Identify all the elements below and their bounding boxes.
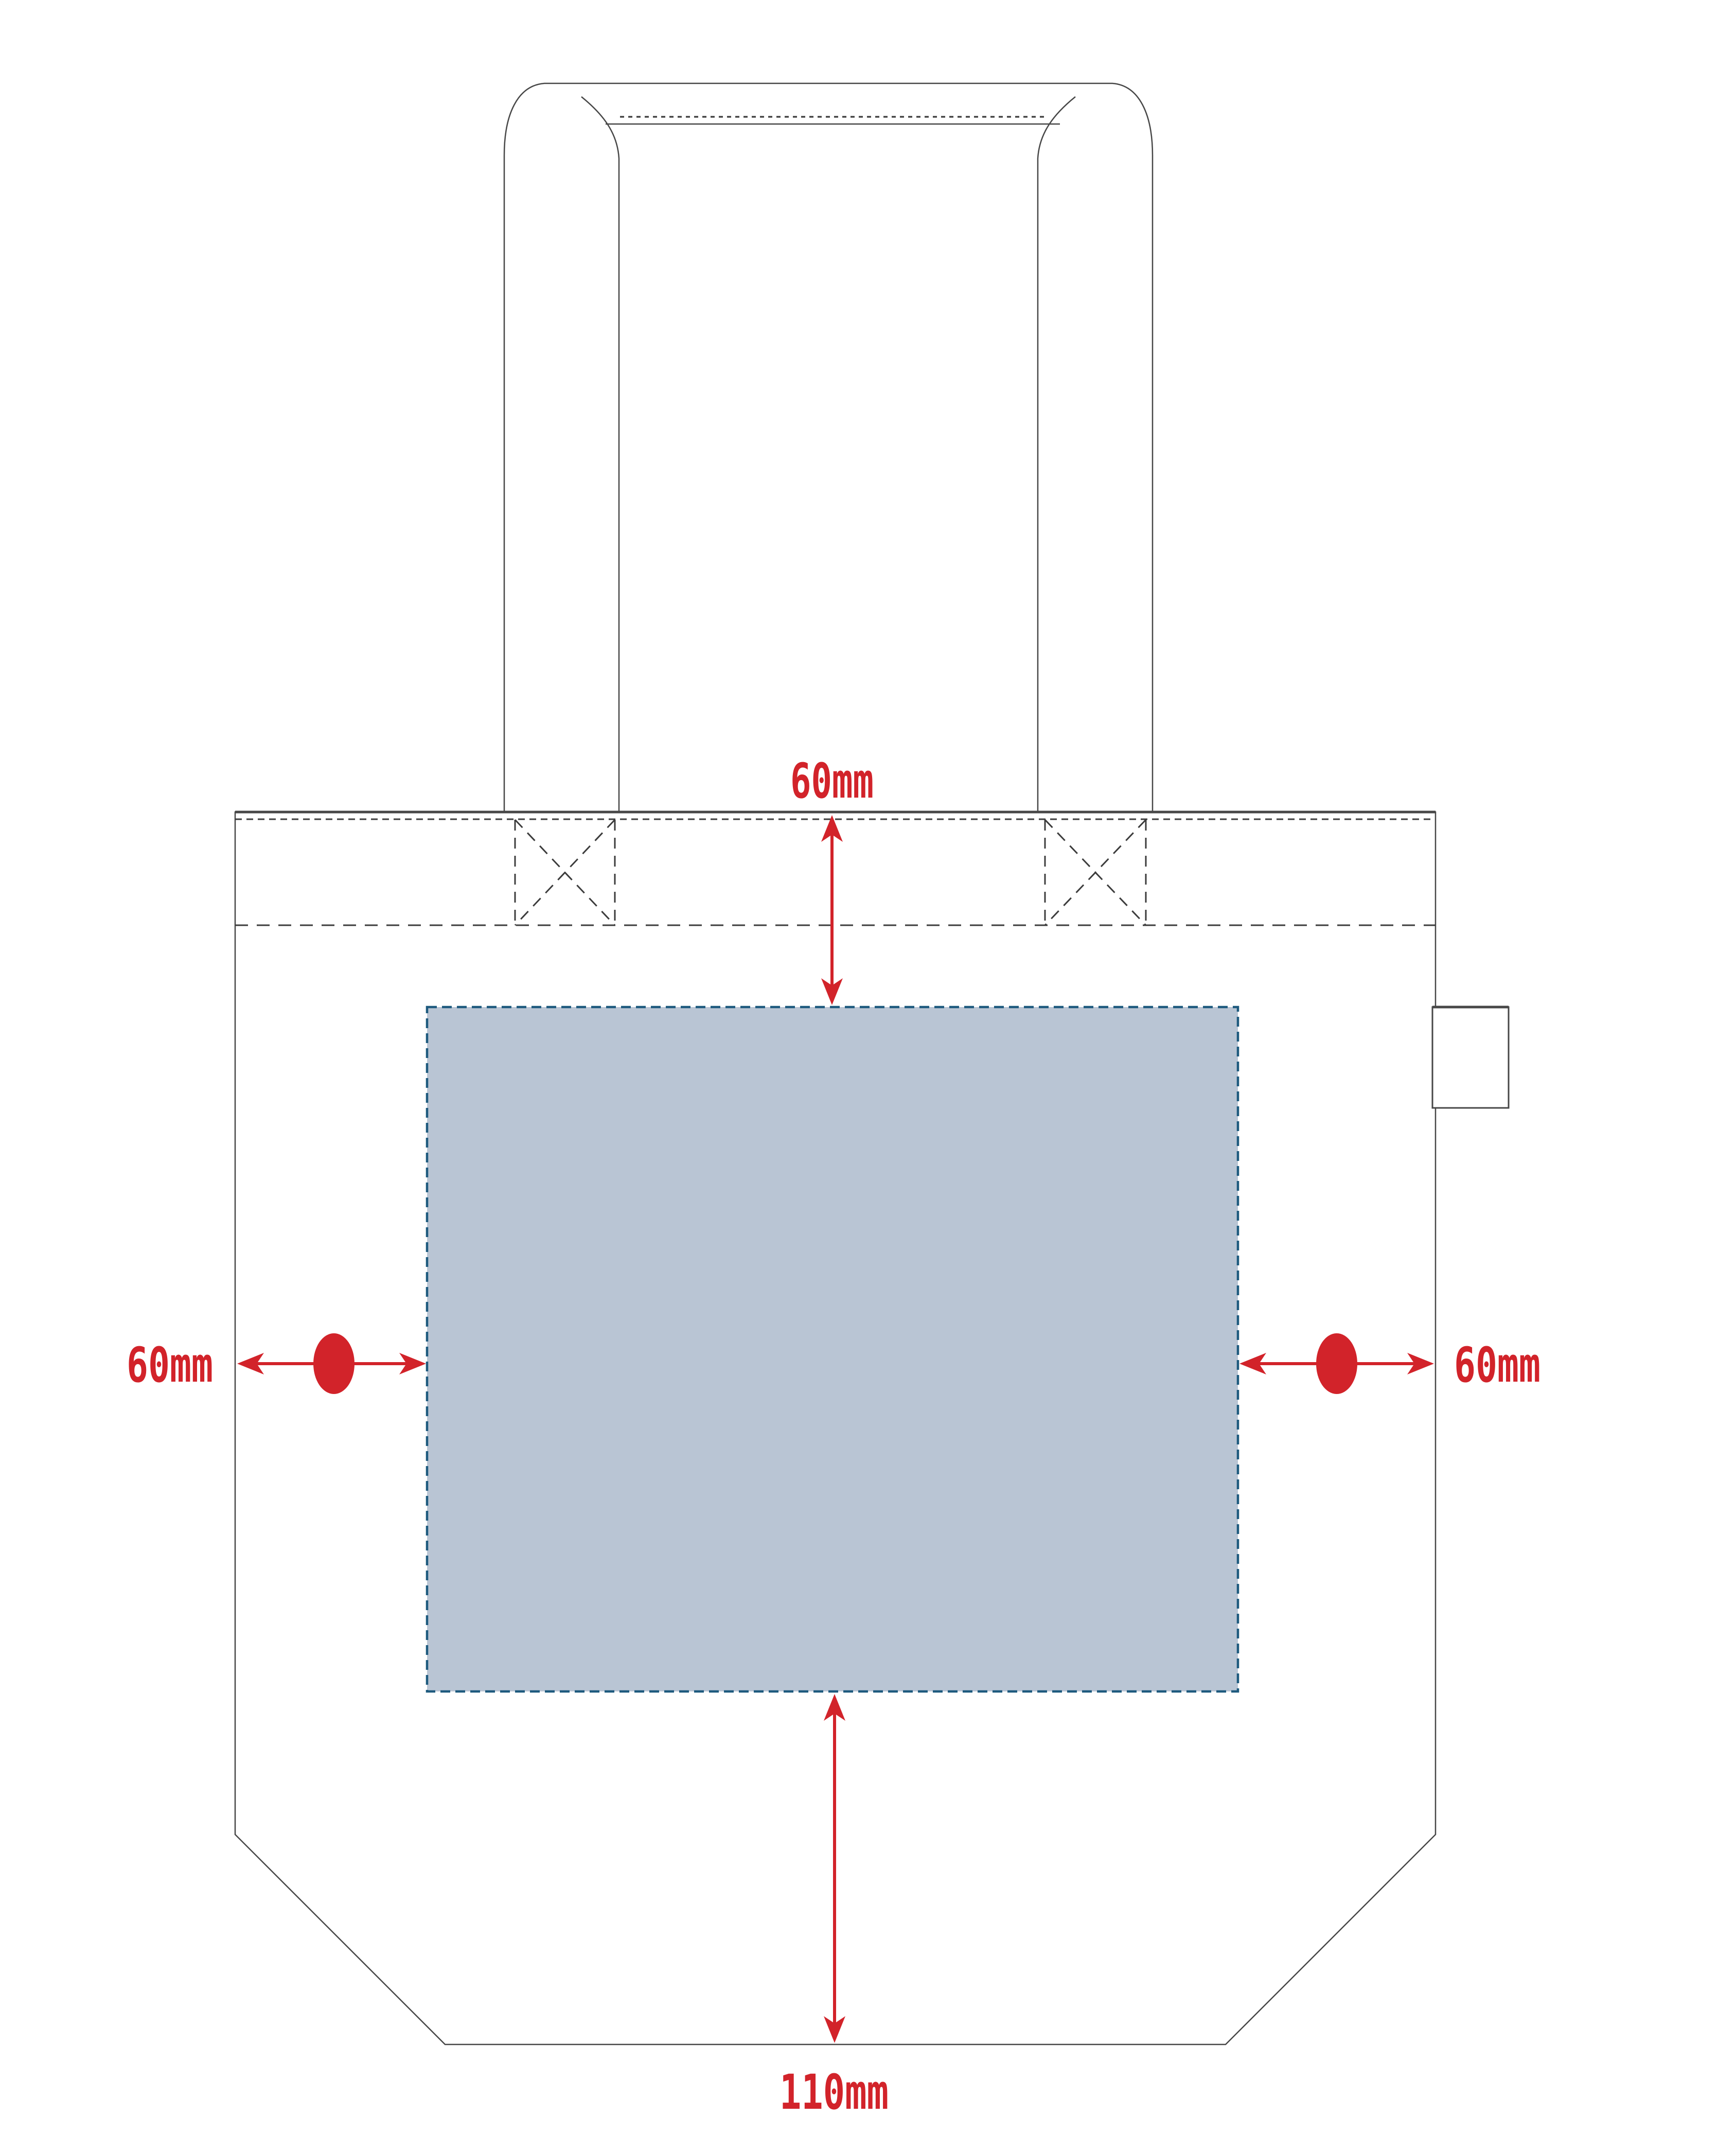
handle-inner-outline-left: [581, 97, 619, 812]
side-loop-tag-rect: [1432, 1007, 1509, 1108]
dimension-dot-right: [1316, 1333, 1357, 1394]
tote-bag-handle: [504, 83, 1153, 812]
diagram-svg: 60mm 60mm 60mm 110mm: [0, 0, 1736, 2152]
handle-outer-outline: [504, 83, 1153, 812]
dimension-dot-left: [313, 1333, 355, 1394]
tote-bag-print-template-diagram: 60mm 60mm 60mm 110mm: [0, 0, 1736, 2152]
side-loop-tag: [1432, 1007, 1509, 1108]
left-margin-label: 60mm: [127, 1337, 213, 1393]
handle-inner-outline-right: [1038, 97, 1075, 812]
print-area: [427, 1007, 1238, 1691]
top-margin-label: 60mm: [790, 753, 874, 809]
bottom-margin-label: 110mm: [780, 2065, 889, 2121]
right-margin-label: 60mm: [1454, 1337, 1540, 1393]
